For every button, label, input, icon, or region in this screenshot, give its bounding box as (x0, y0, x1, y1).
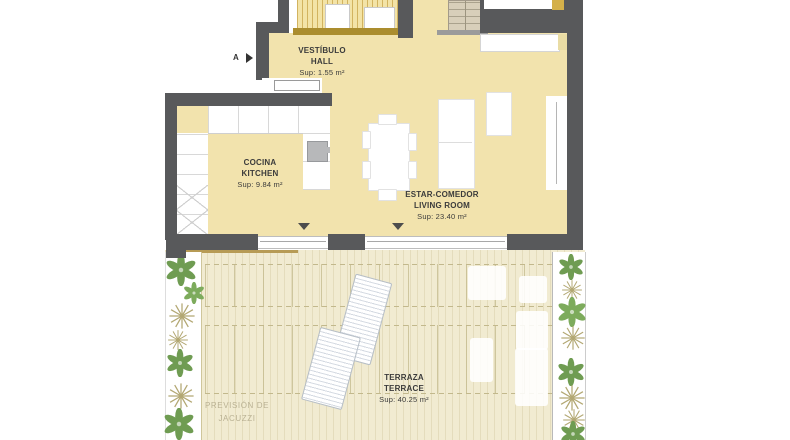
wall-segment (278, 0, 289, 23)
wall-corner (166, 250, 186, 258)
door-direction-marker (392, 223, 404, 230)
room-area: Sup: 40.25 m² (379, 394, 429, 405)
room-area: Sup: 23.40 m² (405, 211, 479, 222)
plant-icon (557, 297, 587, 327)
room-area: Sup: 1.55 m² (298, 67, 346, 78)
terrace-dash-line-1 (205, 264, 552, 265)
window-top-frame (558, 34, 567, 50)
room-area: Sup: 9.84 m² (237, 179, 282, 190)
plant-icon (557, 358, 585, 386)
plant-icon (183, 282, 205, 304)
room-label-cocina: COCINA KITCHEN Sup: 9.84 m² (237, 157, 282, 190)
wall-kitchen-left (165, 93, 177, 240)
plant-icon (168, 302, 196, 330)
dining-table (368, 123, 410, 191)
room-label-vestibulo: VESTÍBULO HALL Sup: 1.55 m² (298, 45, 346, 78)
sliding-glass-door (365, 236, 507, 249)
jacuzzi-annotation: PREVISIÓN DE JACUZZI (205, 399, 269, 425)
section-marker-arrow-icon (246, 53, 253, 63)
plant-icon (558, 254, 584, 280)
section-marker-label: A (233, 53, 239, 62)
room-name-en: HALL (298, 56, 346, 67)
terrace-furniture (470, 338, 493, 382)
wall-right-exterior (567, 33, 583, 250)
hall-sideboard (448, 0, 483, 32)
window-top (480, 34, 560, 52)
wall-segment (398, 0, 413, 38)
closet-door (325, 4, 350, 30)
entry-door-hinge (552, 0, 564, 10)
room-label-terraza: TERRAZA TERRACE Sup: 40.25 m² (379, 372, 429, 405)
room-name-en: KITCHEN (237, 168, 282, 179)
sofa (438, 99, 475, 189)
entry-door (484, 0, 558, 9)
wall-bottom-left (166, 234, 258, 250)
dining-chair (362, 161, 371, 179)
wall-bottom-middle (328, 234, 365, 250)
window-right-glass-line (556, 102, 557, 184)
jacuzzi-annotation-line2: JACUZZI (205, 412, 269, 425)
room-name-es: VESTÍBULO (298, 45, 346, 56)
plant-icon (163, 408, 195, 440)
closet-door (364, 7, 395, 29)
room-name-es: TERRAZA (379, 372, 429, 383)
dining-chair (378, 189, 397, 201)
plant-icon (560, 325, 586, 351)
kitchen-sink (307, 141, 328, 162)
wall-kitchen-top (165, 93, 332, 106)
door-direction-marker (298, 223, 310, 230)
terrace-furniture (516, 311, 548, 350)
sofa-seam (439, 142, 472, 143)
room-name-en: LIVING ROOM (405, 200, 479, 211)
terrace-furniture (468, 266, 506, 300)
room-name-en: TERRACE (379, 383, 429, 394)
sliding-door-rail (367, 241, 505, 242)
room-name-es: ESTAR-COMEDOR (405, 189, 479, 200)
sliding-glass-door (258, 236, 328, 249)
terrace-edge-line (186, 250, 298, 253)
room-label-estar: ESTAR-COMEDOR LIVING ROOM Sup: 23.40 m² (405, 189, 479, 222)
room-name-es: COCINA (237, 157, 282, 168)
kitchen-appliance-cell (176, 185, 208, 210)
dining-chair (408, 161, 417, 179)
wall-bottom-right (507, 234, 583, 250)
sliding-door-rail (260, 241, 326, 242)
wall-segment (256, 22, 269, 80)
kitchen-sink-tap (326, 147, 330, 153)
kitchen-appliance-cell (176, 210, 208, 235)
dining-chair (408, 133, 417, 151)
jacuzzi-annotation-line1: PREVISIÓN DE (205, 399, 269, 412)
floor-plan-canvas: A VESTÍBULO HALL Sup: 1.55 m² COCINA KIT… (0, 0, 790, 440)
door-leaf (274, 80, 320, 91)
armchair (486, 92, 512, 136)
dining-chair (378, 114, 397, 125)
terrace-furniture (515, 348, 548, 406)
closet-front-rail (293, 28, 400, 35)
plant-icon (560, 421, 586, 440)
dining-chair (362, 131, 371, 149)
plant-icon (166, 349, 194, 377)
plant-icon (167, 329, 189, 351)
terrace-furniture (519, 276, 547, 303)
plant-icon (167, 382, 195, 410)
